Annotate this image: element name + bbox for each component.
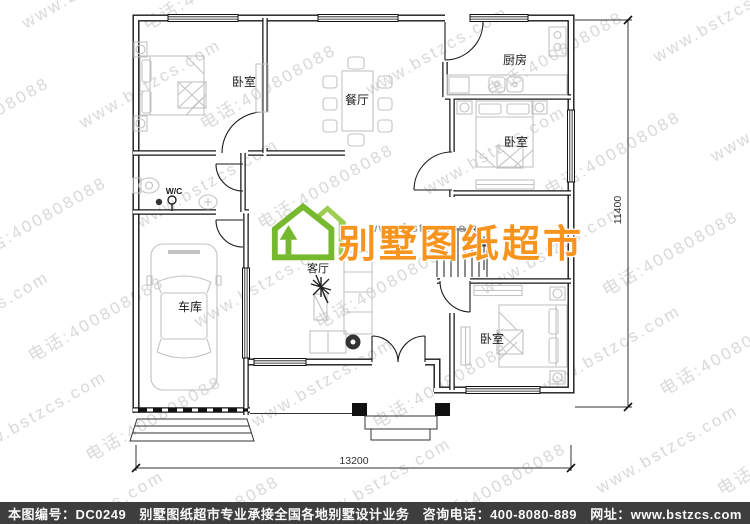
room-label-dining: 餐厅 (345, 92, 369, 107)
footer-bar: 本图编号：DC0249 别墅图纸超市专业承接全国各地别墅设计业务 咨询电话：40… (0, 502, 750, 524)
footer-slogan: 别墅图纸超市专业承接全国各地别墅设计业务 (139, 504, 409, 523)
window-top-kitchen (470, 15, 528, 22)
window-top-dining (318, 15, 398, 22)
dimension-height-value: 11400 (612, 196, 624, 225)
blueprint-page: www.bstzcs.com 电话:4008080889 (0, 0, 750, 524)
room-label-kitchen: 厨房 (503, 52, 527, 67)
window-bedroom3-south (466, 387, 540, 394)
footer-sheet-number: 本图编号：DC0249 (8, 504, 126, 523)
room-label-garage: 车库 (178, 299, 202, 314)
logo-brand-text: 别墅图纸超市 (338, 226, 584, 264)
window-living-south (254, 359, 306, 366)
window-top-bedroom (168, 15, 238, 22)
logo-house-icon (268, 198, 346, 264)
room-label-bedroom3: 卧室 (480, 331, 504, 346)
room-label-bedroom2: 卧室 (504, 134, 528, 149)
window-living-west (243, 268, 250, 358)
footer-phone: 咨询电话：400-8080-889 (423, 504, 577, 523)
room-label-bedroom1: 卧室 (232, 74, 256, 89)
dimension-width-value: 13200 (339, 455, 368, 467)
brand-logo: 别墅图纸超市 (268, 198, 584, 264)
porch-column-right (435, 403, 450, 416)
room-label-wc: W/C (166, 186, 183, 196)
floor-drain (156, 199, 162, 205)
footer-website: 网址：www.bstzcs.com (590, 504, 742, 523)
porch-column-left (352, 403, 367, 416)
window-right-bedroom (568, 110, 575, 182)
